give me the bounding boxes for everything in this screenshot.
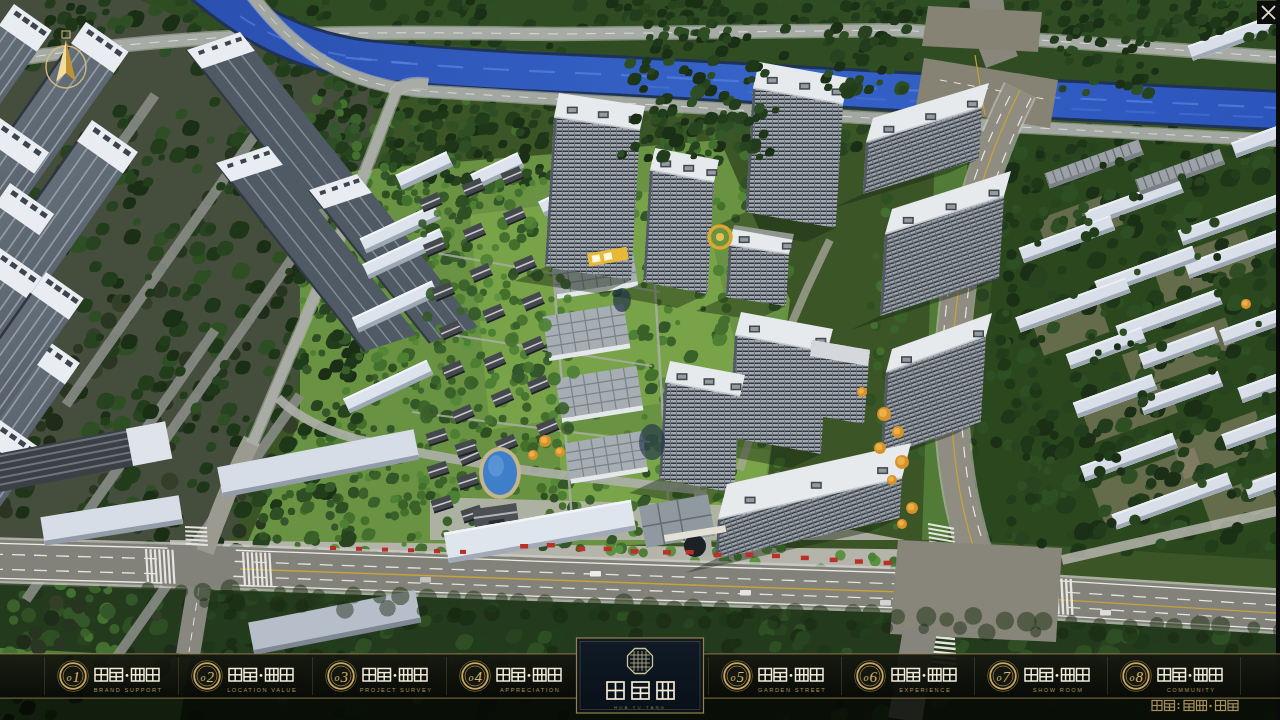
svg-text:6: 6: [870, 669, 878, 685]
svg-text:o: o: [335, 672, 340, 683]
svg-text:3: 3: [340, 669, 349, 685]
svg-text:5: 5: [737, 669, 745, 685]
svg-text:o: o: [67, 672, 72, 683]
svg-text:HUA YU TANG: HUA YU TANG: [614, 705, 666, 710]
svg-text:SHOW ROOM: SHOW ROOM: [1033, 687, 1084, 693]
svg-text:o: o: [1130, 672, 1135, 683]
svg-text:o: o: [201, 672, 206, 683]
svg-text:1: 1: [73, 669, 81, 685]
svg-text:o: o: [731, 672, 736, 683]
svg-text:PROJECT SURVEY: PROJECT SURVEY: [360, 687, 433, 693]
svg-text:GARDEN STREET: GARDEN STREET: [758, 687, 826, 693]
svg-text:o: o: [864, 672, 869, 683]
svg-text:COMMUNITY: COMMUNITY: [1167, 687, 1216, 693]
svg-text:4: 4: [475, 669, 483, 685]
svg-text:APPRECIATION: APPRECIATION: [500, 687, 560, 693]
svg-text:2: 2: [207, 669, 215, 685]
svg-text:o: o: [997, 672, 1002, 683]
svg-text:LOCATION VALUE: LOCATION VALUE: [227, 687, 297, 693]
svg-text:EXPERIENCE: EXPERIENCE: [899, 687, 951, 693]
svg-text:BRAND SUPPORT: BRAND SUPPORT: [94, 687, 163, 693]
svg-text:o: o: [469, 672, 474, 683]
svg-text:8: 8: [1136, 669, 1144, 685]
